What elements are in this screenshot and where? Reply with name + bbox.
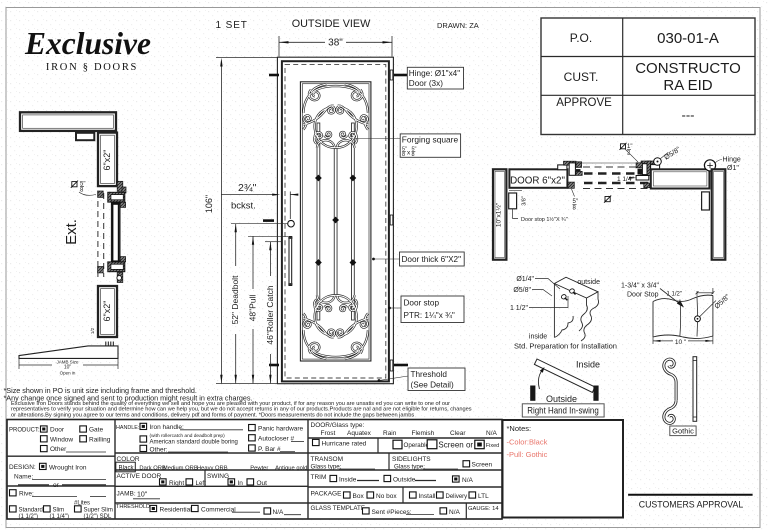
svg-text:---: --- bbox=[682, 108, 695, 123]
svg-text:-Pull: Gothic: -Pull: Gothic bbox=[507, 450, 548, 459]
svg-text:Ext.: Ext. bbox=[63, 219, 80, 245]
svg-text:N/A: N/A bbox=[486, 430, 498, 437]
svg-text:52" Deadbolt: 52" Deadbolt bbox=[230, 275, 240, 324]
svg-text:APPROVE: APPROVE bbox=[556, 97, 612, 109]
svg-text:Slim: Slim bbox=[53, 508, 65, 514]
svg-text:Right: Right bbox=[169, 480, 184, 487]
svg-text:Heavy ORB: Heavy ORB bbox=[197, 465, 228, 471]
svg-text:Door stop 1½"X ¾": Door stop 1½"X ¾" bbox=[521, 216, 568, 223]
svg-text:Inside: Inside bbox=[576, 360, 600, 370]
svg-text:In: In bbox=[238, 480, 244, 487]
svg-text:N/A: N/A bbox=[273, 509, 285, 516]
svg-text:Hinge: Hinge bbox=[723, 157, 741, 164]
svg-text:Operable: Operable bbox=[404, 442, 430, 449]
svg-text:RA EID: RA EID bbox=[663, 77, 712, 94]
svg-text:Residential: Residential bbox=[160, 506, 193, 513]
svg-text:Clear: Clear bbox=[450, 430, 466, 437]
svg-text:6"x2": 6"x2" bbox=[102, 150, 112, 171]
svg-text:(1 1/2"): (1 1/2") bbox=[19, 514, 38, 520]
svg-text:PRODUCT:: PRODUCT: bbox=[9, 428, 40, 434]
svg-text:Sent #Pieces:: Sent #Pieces: bbox=[372, 509, 412, 516]
svg-text:Super Slim: Super Slim bbox=[84, 508, 113, 514]
svg-text:Door (3x): Door (3x) bbox=[409, 79, 443, 88]
svg-text:Flemish: Flemish bbox=[412, 430, 435, 437]
svg-text:Outside: Outside bbox=[393, 476, 416, 483]
svg-text:Other: Other bbox=[50, 446, 67, 453]
svg-text:Right Hand In-swing: Right Hand In-swing bbox=[527, 405, 599, 415]
svg-text:Door stop: Door stop bbox=[404, 299, 440, 308]
svg-text:Ø5/8": Ø5/8" bbox=[513, 287, 531, 294]
svg-text:Hinge: Ø1"x4": Hinge: Ø1"x4" bbox=[409, 69, 460, 78]
svg-text:Install: Install bbox=[419, 493, 437, 500]
svg-text:1 1/4": 1 1/4" bbox=[617, 176, 634, 183]
svg-text:DESIGN:: DESIGN: bbox=[9, 464, 36, 471]
svg-text:10": 10" bbox=[137, 492, 148, 499]
svg-text:(1 1/4"): (1 1/4") bbox=[50, 514, 69, 520]
svg-text:5": 5" bbox=[573, 199, 578, 205]
svg-text:Screen: Screen bbox=[472, 462, 493, 469]
svg-text:Box: Box bbox=[353, 493, 365, 500]
svg-text:Screen or: Screen or bbox=[438, 440, 473, 449]
svg-text:or: or bbox=[53, 482, 60, 489]
svg-text:Aquatex: Aquatex bbox=[347, 430, 372, 437]
svg-text:Inside: Inside bbox=[339, 476, 357, 483]
svg-text:8: 8 bbox=[412, 152, 415, 158]
svg-text:Delivery: Delivery bbox=[446, 494, 468, 500]
svg-text:P.O.: P.O. bbox=[570, 31, 592, 45]
svg-text:Hurricane rated: Hurricane rated bbox=[322, 440, 367, 447]
svg-text:6"x2": 6"x2" bbox=[102, 301, 112, 322]
svg-text:CONSTRUCTO: CONSTRUCTO bbox=[635, 60, 741, 77]
svg-text:Door Stop: Door Stop bbox=[627, 292, 659, 299]
svg-text:-Color:Black: -Color:Black bbox=[507, 438, 548, 447]
svg-text:1": 1" bbox=[627, 144, 632, 150]
svg-text:Name:: Name: bbox=[14, 474, 33, 481]
svg-text:Other:: Other: bbox=[150, 446, 168, 453]
svg-text:Gate: Gate bbox=[89, 427, 103, 434]
svg-text:Ø1/4": Ø1/4" bbox=[516, 276, 534, 283]
svg-text:N/A: N/A bbox=[449, 509, 461, 516]
svg-text:Glass type:: Glass type: bbox=[394, 464, 425, 471]
svg-text:Medium ORB: Medium ORB bbox=[163, 465, 198, 471]
svg-text:Threshold: Threshold bbox=[411, 370, 448, 379]
svg-text:Gothic: Gothic bbox=[672, 427, 694, 436]
svg-text:(1/2") SDL: (1/2") SDL bbox=[84, 514, 112, 520]
svg-text:Outside: Outside bbox=[546, 394, 577, 404]
svg-text:Autocloser #: Autocloser # bbox=[258, 436, 295, 443]
svg-text:1 SET: 1 SET bbox=[216, 20, 248, 31]
svg-text:Window: Window bbox=[50, 436, 73, 443]
svg-text:or alterations.By signing you: or alterations.By signing you agree to o… bbox=[11, 412, 414, 418]
svg-text:Open in: Open in bbox=[60, 371, 76, 376]
svg-text:Rain: Rain bbox=[383, 430, 397, 437]
svg-text:10"x1½": 10"x1½" bbox=[495, 202, 503, 227]
svg-text:LTL: LTL bbox=[478, 493, 489, 500]
svg-text:Iron handle:: Iron handle: bbox=[150, 424, 185, 431]
svg-text:JAMB:: JAMB: bbox=[117, 491, 136, 498]
svg-text:GLASS TEMPLATE: GLASS TEMPLATE bbox=[311, 505, 365, 512]
svg-text:Commercial: Commercial bbox=[201, 506, 236, 513]
svg-text:Left: Left bbox=[196, 480, 207, 487]
svg-text:N/A: N/A bbox=[462, 477, 474, 484]
svg-text:CUSTOMERS APPROVAL: CUSTOMERS APPROVAL bbox=[639, 500, 744, 511]
svg-text:American standard double borin: American standard double boring bbox=[150, 440, 238, 446]
svg-text:OUTSIDE VIEW: OUTSIDE VIEW bbox=[292, 18, 371, 30]
svg-text:CUST.: CUST. bbox=[564, 70, 599, 84]
svg-text:Out: Out bbox=[257, 480, 268, 487]
svg-text:No box: No box bbox=[376, 493, 397, 500]
svg-text:PTR: 1¼"x ¾": PTR: 1¼"x ¾" bbox=[404, 311, 455, 320]
svg-text:Black: Black bbox=[119, 464, 135, 471]
svg-text:THRESHOLD: THRESHOLD bbox=[116, 504, 150, 510]
svg-text:(See Detail): (See Detail) bbox=[411, 381, 455, 390]
svg-text:DOOR/Glass type:: DOOR/Glass type: bbox=[311, 422, 365, 429]
svg-text:DOOR 6"x2": DOOR 6"x2" bbox=[510, 176, 565, 187]
svg-text:Fixed: Fixed bbox=[486, 443, 499, 449]
svg-text:(with rollercatch and deadbolt: (with rollercatch and deadbolt prep) bbox=[150, 433, 226, 439]
svg-text:Wrought Iron: Wrought Iron bbox=[49, 465, 87, 472]
svg-text:GAUGE: 14: GAUGE: 14 bbox=[468, 506, 499, 512]
svg-text:Panic hardware: Panic hardware bbox=[258, 426, 304, 433]
svg-text:38": 38" bbox=[328, 38, 343, 49]
svg-text:Standard: Standard bbox=[19, 508, 43, 514]
svg-text:outside: outside bbox=[577, 279, 600, 286]
svg-text:TRIM: TRIM bbox=[311, 474, 327, 481]
svg-text:10 ": 10 " bbox=[675, 339, 687, 346]
svg-text:Ø1": Ø1" bbox=[727, 165, 739, 172]
svg-text:48"Pull: 48"Pull bbox=[248, 295, 258, 322]
svg-text:PACKAGE: PACKAGE bbox=[311, 491, 343, 498]
svg-text:Antique gold: Antique gold bbox=[275, 465, 307, 471]
svg-text:IRON § DOORS: IRON § DOORS bbox=[46, 62, 138, 73]
svg-text:8: 8 bbox=[402, 152, 405, 158]
svg-text:Forging square: Forging square bbox=[402, 135, 459, 145]
svg-text:SIDELIGHTS: SIDELIGHTS bbox=[392, 456, 431, 463]
svg-text:Pewter: Pewter bbox=[250, 465, 268, 471]
svg-text:3/8": 3/8" bbox=[522, 196, 528, 206]
svg-text:Glass type:: Glass type: bbox=[311, 464, 342, 471]
svg-text:HANDLE:: HANDLE: bbox=[116, 425, 139, 431]
svg-text:1-3/4" x 3/4": 1-3/4" x 3/4" bbox=[621, 283, 660, 290]
svg-text:ACTIVE DOOR: ACTIVE DOOR bbox=[117, 473, 162, 480]
svg-text:Railling: Railling bbox=[89, 436, 111, 443]
svg-text:030-01-A: 030-01-A bbox=[657, 30, 719, 47]
svg-text:1 1/2": 1 1/2" bbox=[667, 292, 682, 298]
svg-text:Frost: Frost bbox=[321, 430, 336, 437]
svg-text:1/2: 1/2 bbox=[90, 327, 95, 334]
svg-text:1 1/2": 1 1/2" bbox=[510, 305, 529, 312]
svg-text:Std. Preparation for Installat: Std. Preparation for Installation bbox=[514, 342, 617, 351]
svg-text:P. Bar #: P. Bar # bbox=[258, 446, 281, 453]
svg-text:46"Roller Catch: 46"Roller Catch bbox=[265, 285, 275, 345]
svg-text:Rive:: Rive: bbox=[19, 491, 34, 498]
svg-text:2¾": 2¾" bbox=[238, 182, 257, 194]
svg-text:TRANSOM: TRANSOM bbox=[311, 456, 344, 463]
svg-text:106": 106" bbox=[204, 195, 214, 213]
svg-text:bckst.: bckst. bbox=[231, 201, 256, 212]
svg-text:SWING: SWING bbox=[207, 473, 229, 480]
svg-text:Exclusive: Exclusive bbox=[24, 26, 151, 61]
svg-text:Door thick 6"X2": Door thick 6"X2" bbox=[402, 255, 462, 264]
svg-text:inside: inside bbox=[529, 334, 547, 341]
svg-text:*Notes:: *Notes: bbox=[507, 424, 532, 433]
svg-text:DRAWN: ZA: DRAWN: ZA bbox=[437, 21, 479, 30]
svg-text:Door: Door bbox=[50, 427, 65, 434]
